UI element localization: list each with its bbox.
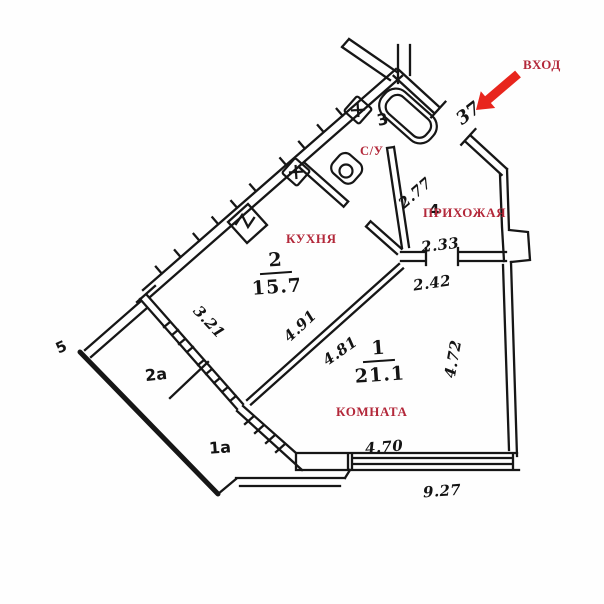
- dim-room-bottom: 4.70: [364, 436, 404, 457]
- balcony-1a-walls: [218, 470, 350, 494]
- floorplan-page: ВХОД 37 3 С/У КУХНЯ 2 15.7 1 21.1 КОМНАТ…: [0, 0, 604, 604]
- hallway-label: ПРИХОЖАЯ: [423, 205, 506, 221]
- wall-entrance: [394, 70, 507, 175]
- balcony-2a-label: 2а: [144, 364, 168, 385]
- wall-bottom-window: [296, 453, 519, 470]
- balcony-1a-label: 1а: [208, 437, 231, 457]
- kitchen-number: 2: [259, 248, 292, 275]
- floorplan-drawing: [0, 0, 604, 604]
- wall-right: [503, 262, 517, 456]
- bathroom-label: С/У: [360, 144, 383, 159]
- wall-corner-cut: [237, 406, 302, 470]
- room-area: 21.1: [352, 360, 408, 388]
- wall-sw-hatched: [137, 286, 243, 409]
- entrance-arrow-icon: [476, 71, 521, 110]
- dim-bottom-total: 9.27: [422, 481, 461, 502]
- room-label: КОМНАТА: [336, 404, 407, 420]
- entrance-label: ВХОД: [523, 57, 561, 73]
- kitchen-area: 15.7: [247, 272, 307, 300]
- room-number: 1: [362, 336, 395, 363]
- room-number-area: 1 21.1: [350, 335, 407, 388]
- kitchen-label: КУХНЯ: [286, 231, 337, 247]
- kitchen-number-area: 2 15.7: [245, 247, 306, 300]
